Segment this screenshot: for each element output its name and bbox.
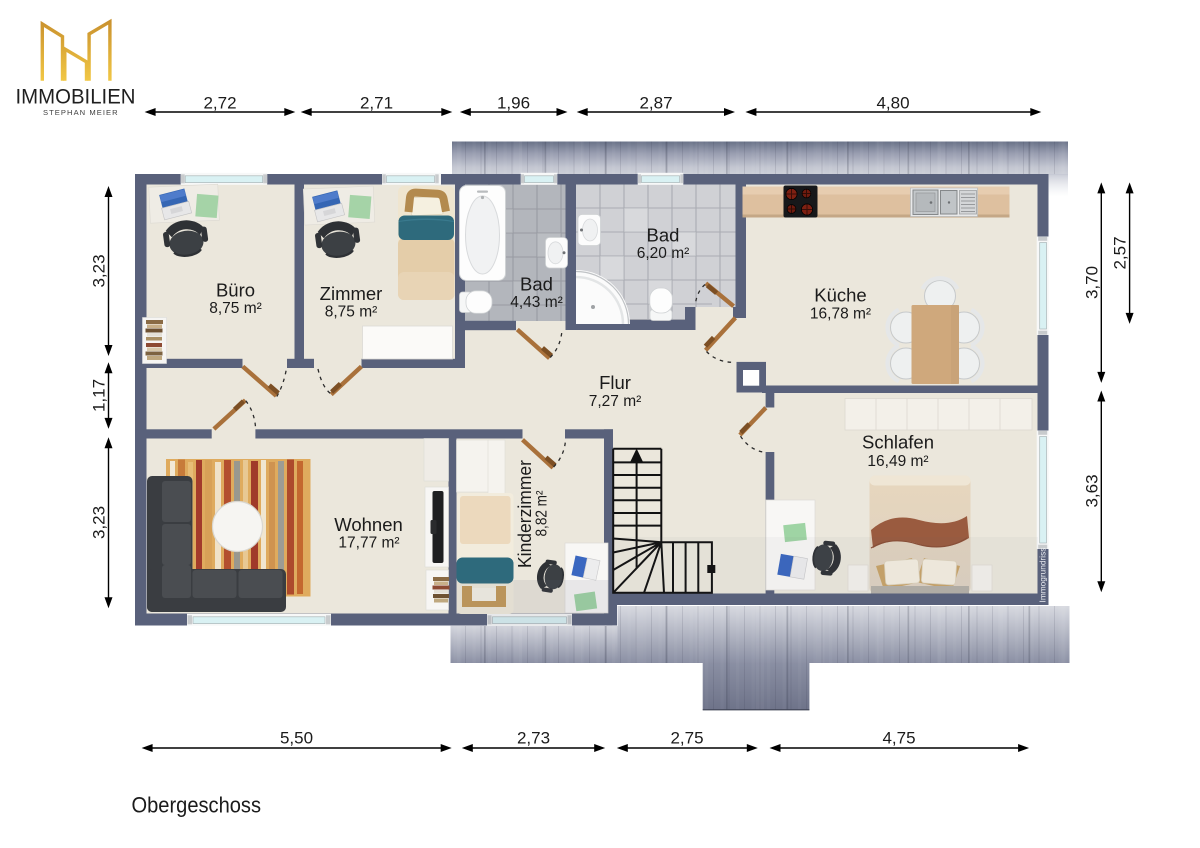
svg-text:16,78 m²: 16,78 m² (810, 306, 871, 323)
svg-text:5,50: 5,50 (280, 729, 313, 748)
svg-text:Bad: Bad (520, 274, 553, 295)
svg-text:Kinderzimmer: Kinderzimmer (514, 460, 535, 568)
svg-text:1,17: 1,17 (90, 379, 109, 412)
svg-text:Büro: Büro (216, 280, 255, 301)
svg-text:3,23: 3,23 (90, 506, 109, 539)
svg-text:3,23: 3,23 (90, 254, 109, 287)
svg-text:16,49 m²: 16,49 m² (867, 453, 928, 470)
svg-text:2,73: 2,73 (517, 729, 550, 748)
svg-text:IMMOBILIEN: IMMOBILIEN (16, 85, 136, 109)
svg-text:Obergeschoss: Obergeschoss (132, 793, 262, 818)
svg-text:7,27 m²: 7,27 m² (589, 393, 642, 410)
svg-text:STEPHAN MEIER: STEPHAN MEIER (43, 108, 119, 117)
svg-text:2,71: 2,71 (360, 94, 393, 113)
svg-text:Immogrundriss: Immogrundriss (1037, 548, 1047, 603)
svg-text:8,75 m²: 8,75 m² (325, 304, 378, 321)
svg-text:3,63: 3,63 (1082, 474, 1101, 507)
svg-text:2,87: 2,87 (639, 94, 672, 113)
svg-text:Flur: Flur (599, 372, 631, 393)
svg-text:8,82 m²: 8,82 m² (534, 491, 551, 537)
svg-text:1,96: 1,96 (497, 94, 530, 113)
svg-text:Bad: Bad (647, 225, 680, 246)
svg-text:2,72: 2,72 (203, 94, 236, 113)
svg-text:4,80: 4,80 (876, 94, 909, 113)
svg-text:2,75: 2,75 (670, 729, 703, 748)
svg-text:4,43 m²: 4,43 m² (510, 294, 563, 311)
svg-text:Wohnen: Wohnen (334, 514, 403, 535)
svg-text:2,57: 2,57 (1111, 236, 1130, 269)
svg-text:3,70: 3,70 (1082, 266, 1101, 299)
svg-text:Zimmer: Zimmer (320, 283, 383, 304)
svg-text:Küche: Küche (814, 285, 866, 306)
svg-text:6,20 m²: 6,20 m² (637, 245, 690, 262)
svg-text:4,75: 4,75 (882, 729, 915, 748)
svg-text:8,75 m²: 8,75 m² (209, 300, 262, 317)
svg-text:17,77 m²: 17,77 m² (338, 535, 399, 552)
svg-text:Schlafen: Schlafen (862, 432, 934, 453)
